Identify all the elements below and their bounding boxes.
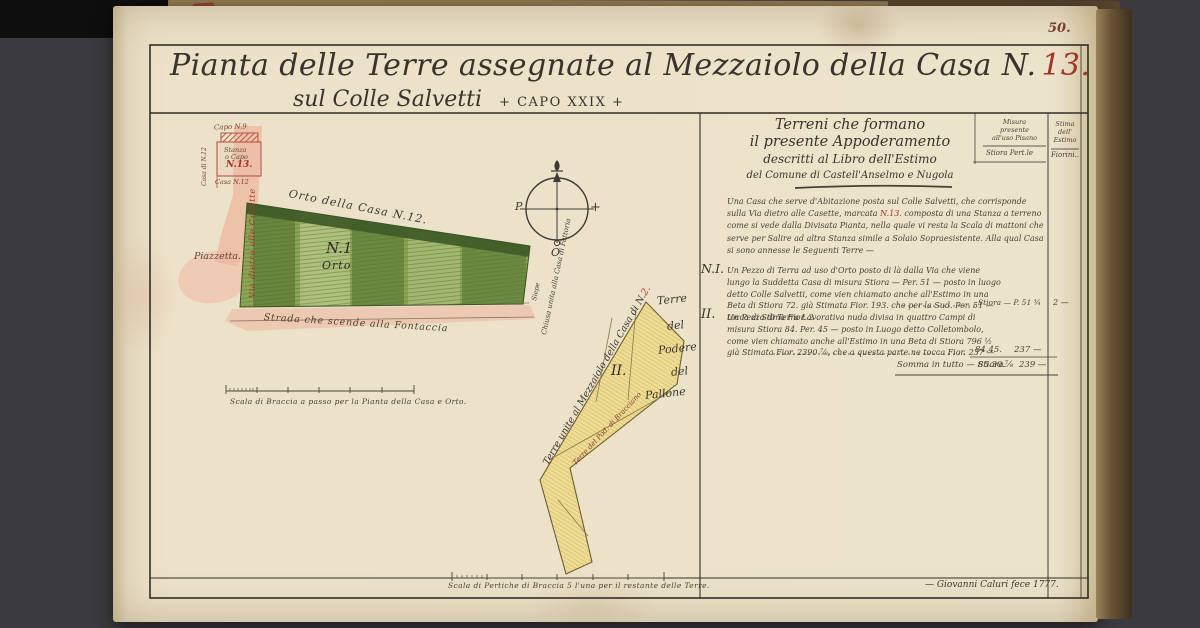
compass-west-letter: P — [515, 201, 522, 213]
somma-value: 239 — — [1019, 361, 1046, 370]
title-line1-text: Pianta delle Terre assegnate al Mezzaiol… — [170, 48, 1036, 83]
braccia-scale-bar — [226, 385, 414, 394]
description-paragraph: Una Casa che serve d'Abitazione posta su… — [727, 196, 1047, 257]
col-misura-line: Stiora Pert.le — [973, 150, 1046, 157]
somma-measure: 85.30.⅞ — [978, 361, 1013, 370]
entry2-measure: 84.45. — [975, 346, 1002, 355]
inset-stanza-number: N.13. — [226, 161, 252, 170]
entry2-numeral: II. — [701, 308, 715, 322]
title-capo-xxix: + CAPO XXIX + — [499, 95, 624, 110]
compass-south-letter: O — [551, 247, 560, 259]
braccia-scale-label: Scala di Braccia a passo per la Pianta d… — [230, 398, 467, 406]
compass-rose — [520, 160, 594, 246]
col-stima-line: dell' — [1050, 129, 1080, 136]
pallone-label-line: del — [670, 365, 688, 378]
col-stima-line: Fiorini.. — [1050, 152, 1080, 159]
title-line1: Pianta delle Terre assegnate al Mezzaiol… — [170, 50, 1090, 82]
col-misura-line: all'uso Pisano — [983, 135, 1046, 142]
panel-header-line3: descritti al Libro dell'Estimo — [700, 153, 1000, 166]
inset-capo9-label: Capo N.9 — [214, 123, 247, 131]
folio-number: 50. — [1048, 22, 1071, 36]
col-stima-line: Stima — [1050, 121, 1080, 128]
green-plot-name: Orto — [322, 260, 351, 272]
panel-header-line2: il presente Appoderamento — [700, 135, 1000, 150]
green-plot-number: N.1 — [326, 241, 352, 257]
description-casa-number: N.13. — [880, 209, 902, 218]
pertiche-scale-label: Scala di Pertiche di Braccia 5 l'una per… — [448, 582, 710, 590]
panel-header-line1: Terreni che formano — [700, 118, 1000, 133]
col-stima-line: Estimo — [1050, 137, 1080, 144]
panel-header-line4: del Comune di Castell'Anselmo e Nugola — [700, 171, 1000, 182]
col-misura-line: Misura — [983, 119, 1046, 126]
entry1-numeral: N.I. — [701, 262, 724, 275]
col-misura-line: presente — [983, 127, 1046, 134]
scanned-book-photo: 50. Pianta delle Terre assegnate al Mezz… — [0, 0, 1200, 628]
title-line2-text: sul Colle Salvetti — [293, 87, 482, 112]
pallone-label-line: del — [666, 319, 684, 332]
inset-left-label: Casa di N.12 — [202, 147, 208, 186]
entry1-measure: Stiora — P. 51 ¾ — [978, 299, 1041, 307]
piazzetta-label: Piazzetta. — [194, 252, 241, 262]
pallone-label-line: Terre — [656, 292, 687, 307]
entry1-value: 2 — — [1053, 299, 1069, 307]
compass-east-cross: + — [590, 201, 601, 215]
title-line2: sul Colle Salvetti + CAPO XXIX + — [293, 88, 624, 111]
pertiche-scale-bar — [452, 572, 664, 581]
cartographer-signature: — Giovanni Caluri fece 1777. — [925, 581, 1059, 590]
entry2-value: 237 — — [1014, 346, 1041, 355]
inset-casa12-label: Casa N.12 — [215, 179, 249, 186]
via-dietro-label: Via dietro alle Casette — [249, 188, 258, 298]
yellow-plot-number: II. — [611, 364, 627, 379]
entry2-text: Un Pezzo di Terra Lavorativa nuda divisa… — [727, 312, 1005, 359]
title-casa-number: 13. — [1041, 48, 1090, 83]
